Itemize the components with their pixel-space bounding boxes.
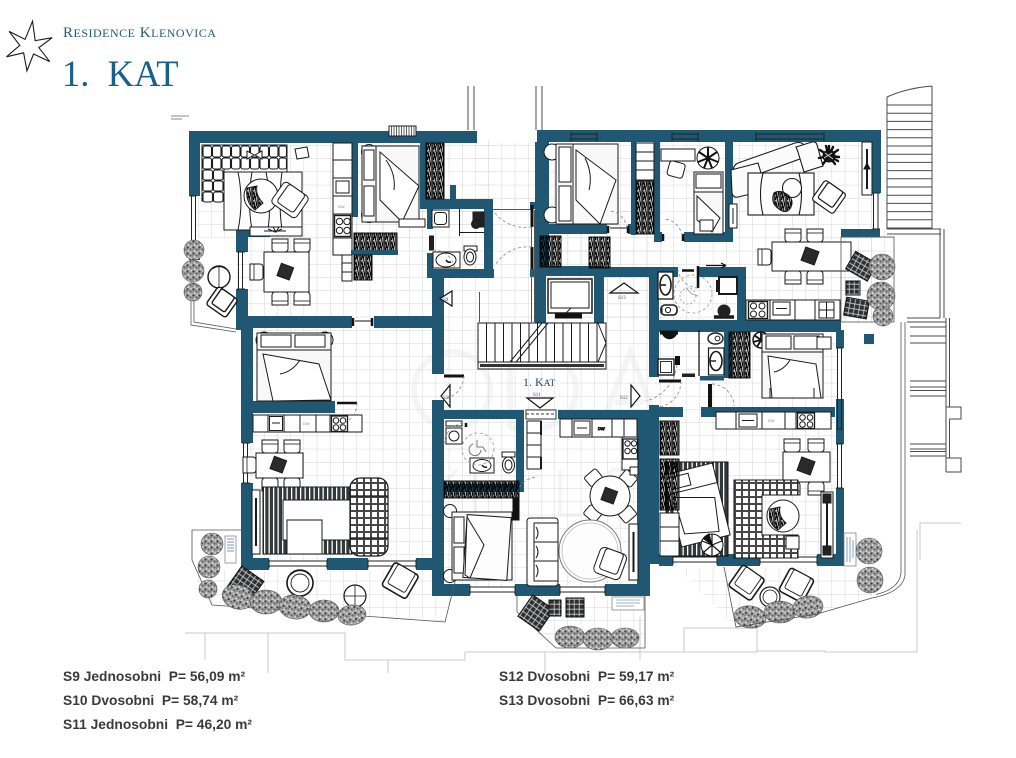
svg-text:DW: DW — [338, 204, 345, 209]
svg-text:S10 Dvosobni P= 58,74 m²: S10 Dvosobni P= 58,74 m² — [63, 693, 239, 708]
svg-text:S9 Jednosobni P= 56,09 m²: S9 Jednosobni P= 56,09 m² — [63, 669, 246, 684]
svg-text:S11: S11 — [533, 393, 541, 398]
svg-text:S11 Jednosobni P= 46,20 m²: S11 Jednosobni P= 46,20 m² — [63, 717, 252, 732]
svg-text:DW: DW — [598, 426, 605, 431]
svg-text:S13 Dvosobni P= 66,63 m²: S13 Dvosobni P= 66,63 m² — [499, 693, 675, 708]
svg-text:S13: S13 — [618, 296, 626, 301]
svg-text:1. KAT: 1. KAT — [62, 53, 179, 94]
svg-text:RESIDENCE KLENOVICA: RESIDENCE KLENOVICA — [63, 25, 216, 41]
svg-text:DW: DW — [768, 418, 775, 423]
svg-text:DW: DW — [303, 421, 310, 426]
svg-text:S12: S12 — [620, 396, 628, 401]
svg-text:S9: S9 — [443, 298, 449, 303]
svg-text:S12 Dvosobni P= 59,17 m²: S12 Dvosobni P= 59,17 m² — [499, 669, 675, 684]
